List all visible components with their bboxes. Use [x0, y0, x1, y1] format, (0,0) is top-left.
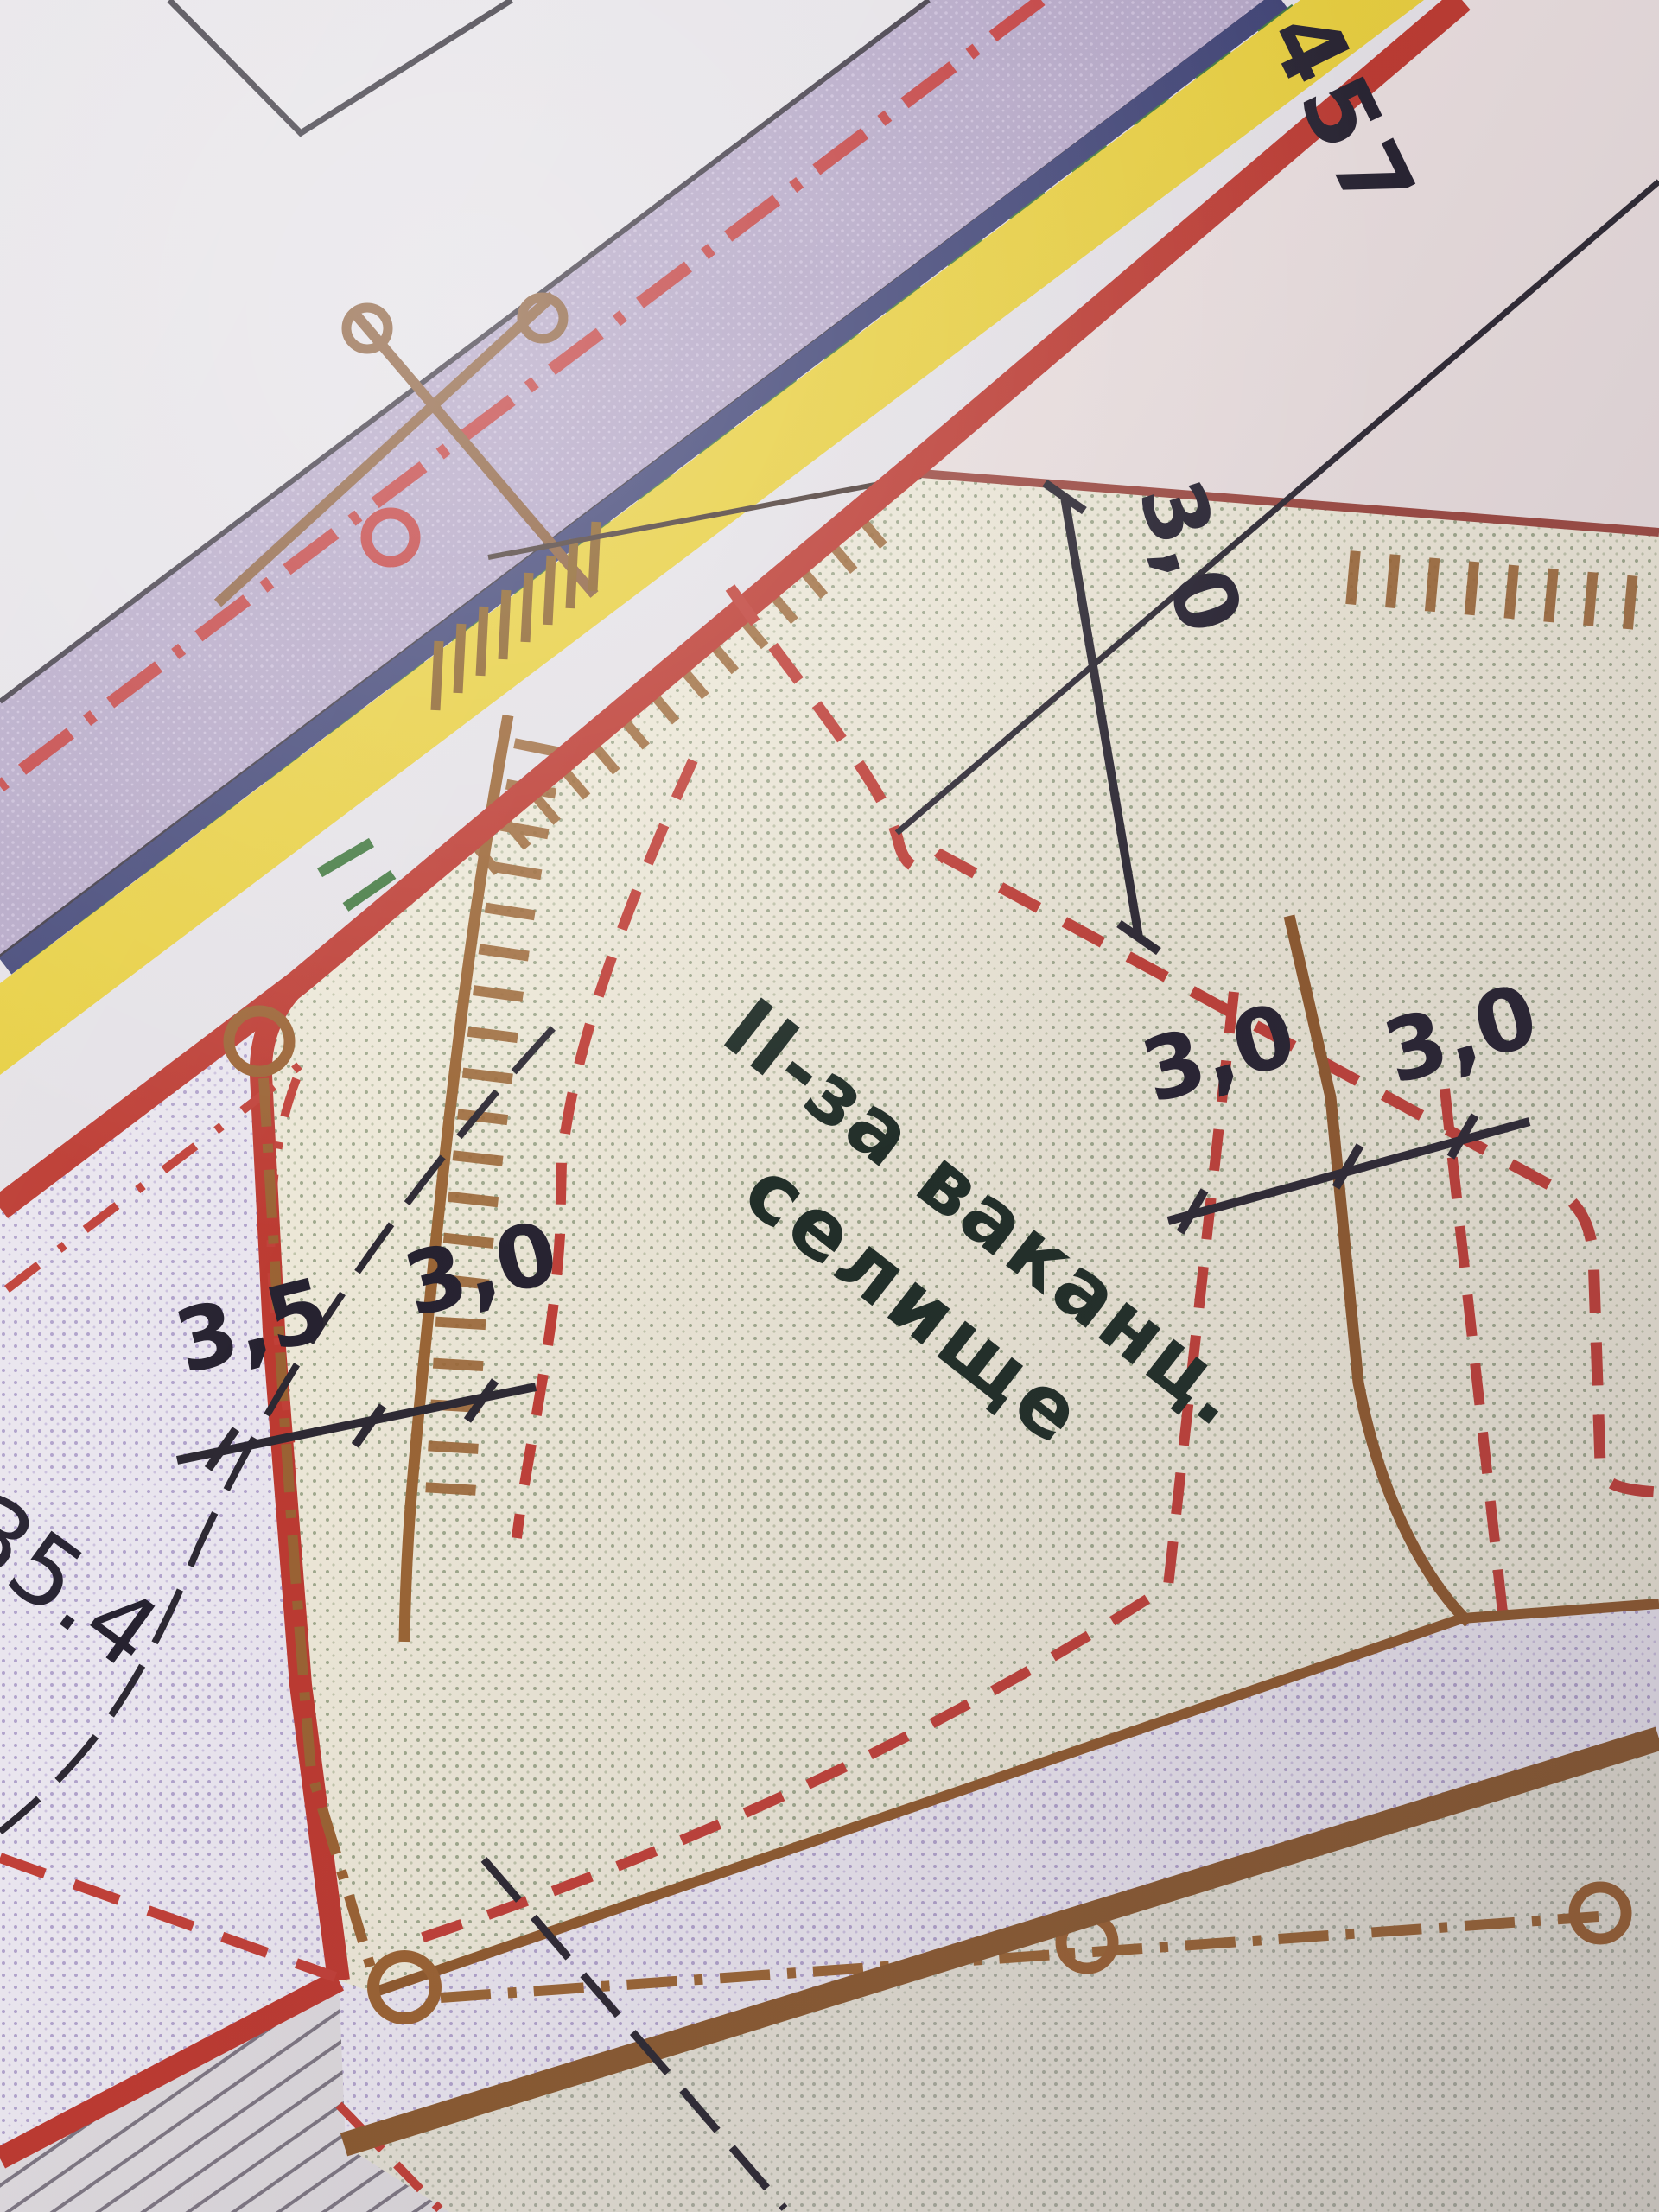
- zoning-map-canvas: 3,0 3,0 3,0 3,5 3,0 457 35.4 ІІ-за вакан…: [0, 0, 1659, 2212]
- map-photo: 3,0 3,0 3,0 3,5 3,0 457 35.4 ІІ-за вакан…: [0, 0, 1659, 2212]
